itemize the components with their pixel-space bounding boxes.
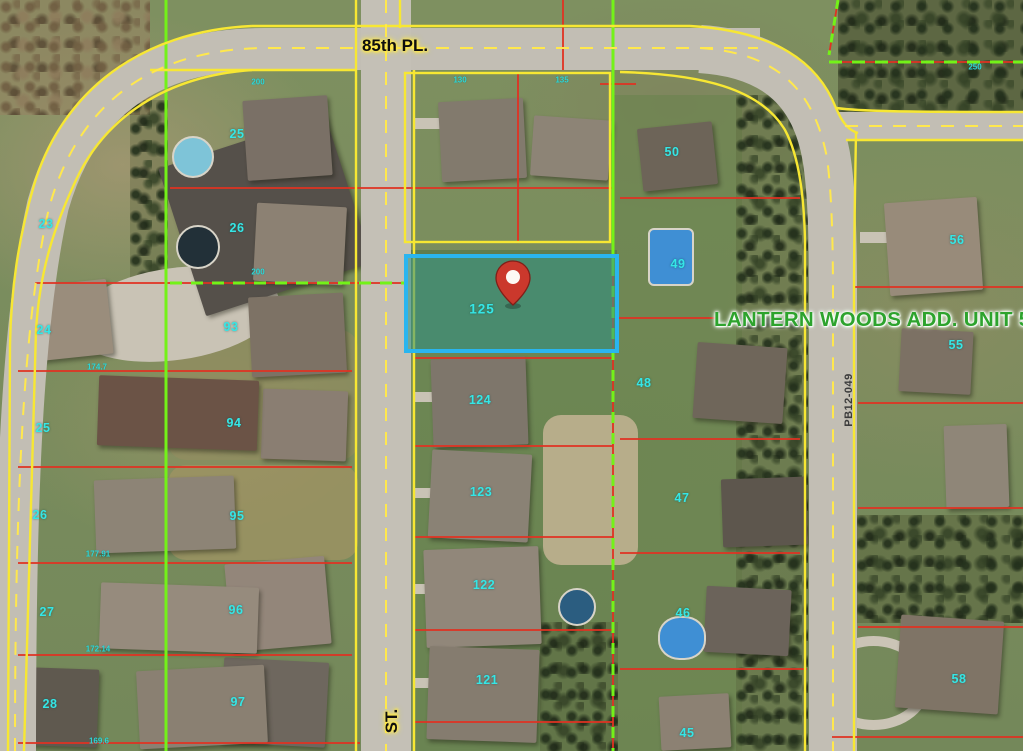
parcel-label: 46 (676, 606, 691, 620)
swimming-pool (658, 616, 706, 660)
house-footprint (21, 279, 113, 362)
parcel-label: 26 (33, 508, 48, 522)
parcel-label: 56 (950, 233, 965, 247)
swimming-pool (558, 588, 596, 626)
subdivision-label: LANTERN WOODS ADD. UNIT 5 (714, 308, 1023, 332)
lawn-patch (405, 250, 617, 352)
dimension-label: 169.6 (89, 737, 109, 746)
parcel-label: 123 (470, 485, 492, 499)
parcel-label: 121 (476, 673, 498, 687)
house-footprint (884, 197, 983, 296)
parcel-label: 95 (230, 509, 245, 523)
swimming-pool (172, 136, 214, 178)
house-footprint (97, 375, 259, 451)
street-label-85th-pl: 85th PL. (362, 36, 428, 56)
parcel-label: 48 (637, 376, 652, 390)
plat-number-label: PB12-049 (843, 373, 855, 427)
parcel-label: 97 (231, 695, 246, 709)
forest (838, 0, 1023, 112)
parcel-label: 58 (952, 672, 967, 686)
house-footprint (703, 586, 791, 656)
house-footprint (692, 342, 787, 424)
house-footprint (659, 693, 732, 751)
house-footprint (438, 98, 527, 182)
selected-parcel-number[interactable]: 125 (469, 302, 495, 317)
sand-patch (543, 415, 638, 565)
parcel-label: 25 (36, 421, 51, 435)
house-footprint (944, 424, 1010, 509)
house-footprint (530, 115, 612, 180)
parcel-label: 24 (37, 323, 52, 337)
parcel-label: 28 (43, 697, 58, 711)
dimension-label: 200 (251, 268, 264, 277)
parcel-label: 50 (665, 145, 680, 159)
house-footprint (895, 615, 1004, 715)
dimension-label: 130 (453, 76, 466, 85)
parcel-label: 49 (671, 257, 686, 271)
trees (856, 515, 1023, 623)
house-footprint (426, 646, 539, 743)
parcel-label: 55 (949, 338, 964, 352)
parcel-label: 23 (39, 217, 54, 231)
house-footprint (99, 582, 259, 653)
dimension-label: 174.7 (87, 363, 107, 372)
parcel-label: 93 (224, 320, 239, 334)
dimension-label: 172.14 (86, 645, 110, 654)
trees (540, 622, 618, 751)
parcel-label: 122 (473, 578, 495, 592)
parcel-label: 94 (227, 416, 242, 430)
parcel-label: 26 (230, 221, 245, 235)
swimming-pool (176, 225, 220, 269)
parcel-label: 47 (675, 491, 690, 505)
parcel-label: 124 (469, 393, 491, 407)
parcel-label: 45 (680, 726, 695, 740)
house-footprint (248, 293, 347, 378)
dimension-label: 177.91 (86, 550, 110, 559)
woods (0, 0, 150, 115)
parcel-label: 27 (40, 605, 55, 619)
dimension-label: 200 (251, 78, 264, 87)
house-footprint (261, 389, 348, 462)
house-footprint (136, 665, 268, 750)
street-label-st: ST. (382, 709, 402, 734)
house-footprint (242, 95, 332, 181)
house-footprint (94, 476, 236, 554)
parcel-label: 96 (229, 603, 244, 617)
parcel-label: 25 (230, 127, 245, 141)
aerial-parcel-map[interactable]: 85th PL. ST. PB12-049 LANTERN WOODS ADD.… (0, 0, 1023, 751)
house-footprint (423, 546, 541, 648)
house-footprint (253, 203, 347, 286)
house-footprint (721, 477, 808, 548)
dimension-label: 135 (555, 76, 568, 85)
dimension-label: 250 (968, 63, 981, 72)
